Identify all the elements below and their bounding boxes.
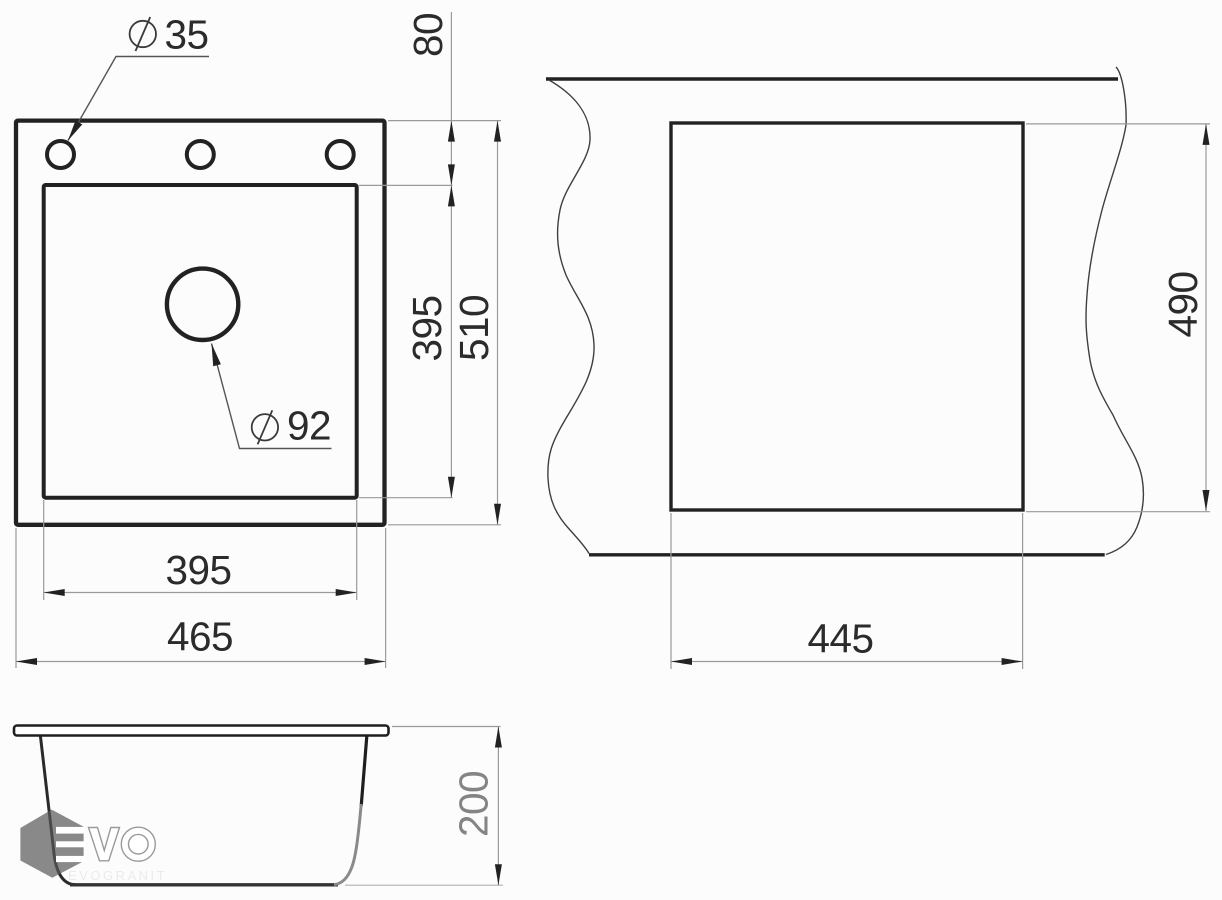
svg-text:80: 80 [405, 13, 451, 57]
svg-text:92: 92 [287, 403, 331, 449]
svg-text:465: 465 [167, 614, 233, 660]
svg-text:510: 510 [451, 295, 497, 361]
svg-text:395: 395 [404, 295, 450, 361]
svg-text:445: 445 [807, 616, 873, 662]
svg-text:395: 395 [165, 547, 231, 593]
svg-text:490: 490 [1160, 271, 1206, 337]
svg-text:EVOGRANIT: EVOGRANIT [68, 868, 167, 883]
svg-text:35: 35 [164, 12, 208, 58]
svg-text:200: 200 [451, 771, 497, 837]
